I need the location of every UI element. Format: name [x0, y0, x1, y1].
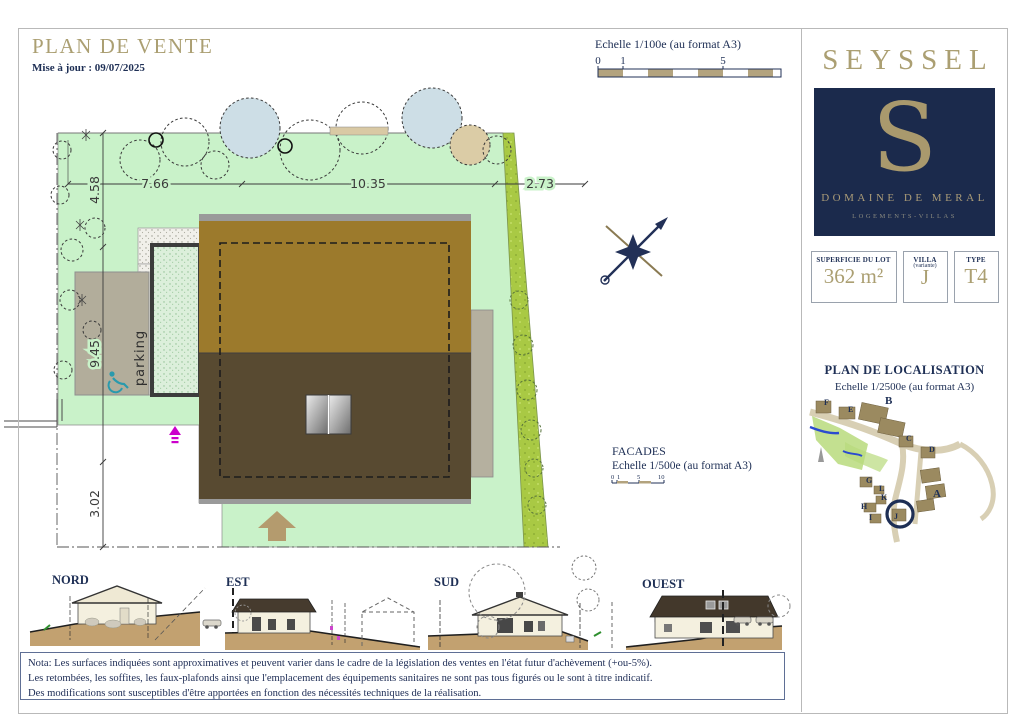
logo-name: DOMAINE DE MERAL — [814, 192, 995, 204]
type-label: TYPE — [955, 256, 998, 264]
plan-sheet: parking — [0, 0, 1024, 725]
type-value: T4 — [955, 265, 998, 288]
note-line-2: Les retombées, les soffites, les faux-pl… — [28, 671, 777, 686]
title-block: PLAN DE VENTE Mise à jour : 09/07/2025 — [32, 34, 213, 74]
info-boxes: SUPERFICIE DU LOT 362 m² VILLA (variante… — [802, 251, 1007, 303]
note-line-1: Nota: Les surfaces indiquées sont approx… — [28, 656, 777, 671]
logo-letter: S — [814, 84, 995, 193]
localisation-title: PLAN DE LOCALISATION — [802, 363, 1007, 378]
superficie-label: SUPERFICIE DU LOT — [812, 256, 896, 264]
brand-logo: S DOMAINE DE MERAL LOGEMENTS-VILLAS — [814, 88, 995, 236]
city-name: SEYSSEL — [802, 44, 1007, 77]
superficie-value: 362 m² — [812, 265, 896, 288]
side-panel: SEYSSEL S DOMAINE DE MERAL LOGEMENTS-VIL… — [802, 28, 1007, 712]
updated-date: Mise à jour : 09/07/2025 — [32, 62, 213, 74]
localisation-scale: Echelle 1/2500e (au format A3) — [802, 381, 1007, 393]
page-title: PLAN DE VENTE — [32, 34, 213, 59]
info-box-villa: VILLA (variante) J — [903, 251, 948, 303]
logo-tagline: LOGEMENTS-VILLAS — [814, 213, 995, 220]
note-line-3: Des modifications sont susceptibles d'êt… — [28, 686, 777, 701]
footer-note: Nota: Les surfaces indiquées sont approx… — [20, 652, 785, 700]
info-box-type: TYPE T4 — [954, 251, 999, 303]
villa-value: J — [904, 266, 947, 289]
localisation-heading: PLAN DE LOCALISATION Echelle 1/2500e (au… — [802, 363, 1007, 393]
info-box-superficie: SUPERFICIE DU LOT 362 m² — [811, 251, 897, 303]
